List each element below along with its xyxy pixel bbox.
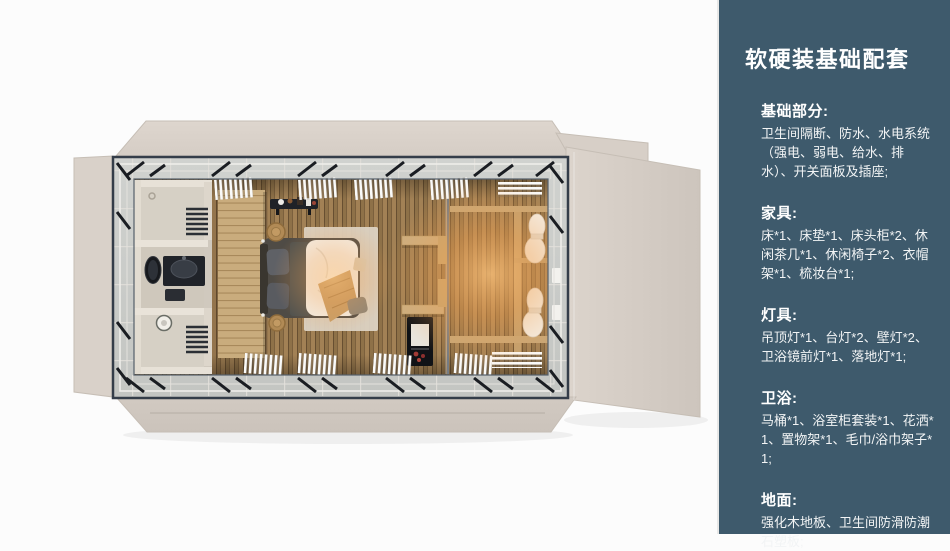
bathroom-partition bbox=[134, 308, 208, 315]
right-wall-flap bbox=[566, 147, 700, 417]
bathroom-wall bbox=[134, 367, 212, 374]
section-heading: 灯具: bbox=[761, 304, 936, 325]
bed-leg bbox=[261, 239, 265, 243]
section-heading: 基础部分: bbox=[761, 100, 936, 121]
bathroom bbox=[134, 180, 212, 374]
wall-switch-panel bbox=[552, 268, 561, 283]
bottle bbox=[288, 199, 293, 204]
bathroom-wall bbox=[134, 180, 141, 374]
vanity-stool bbox=[165, 289, 185, 301]
info-panel: 软硬装基础配套 基础部分: 卫生间隔断、防水、水电系统（强电、弱电、给水、排水）… bbox=[717, 0, 950, 534]
left-wall-flap bbox=[74, 156, 113, 397]
bathroom-wall bbox=[204, 182, 212, 240]
section-lighting: 灯具: 吊顶灯*1、台灯*2、壁灯*2、卫浴镜前灯*1、落地灯*1; bbox=[761, 304, 936, 366]
section-bathroom: 卫浴: 马桶*1、浴室柜套装*1、花洒*1、置物架*1、毛巾/浴巾架子*1; bbox=[761, 387, 936, 468]
wall-switch-panel bbox=[552, 305, 561, 320]
bathroom-partition bbox=[134, 240, 208, 247]
section-basics: 基础部分: 卫生间隔断、防水、水电系统（强电、弱电、给水、排水）、开关面板及插座… bbox=[761, 100, 936, 181]
top-wall-flap bbox=[116, 121, 576, 156]
deco-item bbox=[312, 201, 316, 205]
wardrobe-partition bbox=[218, 190, 267, 358]
vanity-mirror-glass bbox=[148, 260, 158, 280]
section-body: 吊顶灯*1、台灯*2、壁灯*2、卫浴镜前灯*1、落地灯*1; bbox=[761, 328, 935, 366]
bed-leg bbox=[261, 313, 265, 317]
floorplan-render bbox=[0, 0, 716, 534]
section-body: 卫生间隔断、防水、水电系统（强电、弱电、给水、排水）、开关面板及插座; bbox=[761, 124, 935, 181]
wash-basin bbox=[171, 260, 197, 278]
section-body: 强化木地板、卫生间防滑防潮石塑板; bbox=[761, 513, 935, 551]
section-flooring: 地面: 强化木地板、卫生间防滑防潮石塑板; bbox=[761, 489, 936, 551]
section-body: 马桶*1、浴室柜套装*1、花洒*1、置物架*1、毛巾/浴巾架子*1; bbox=[761, 411, 935, 468]
bathroom-wall bbox=[134, 180, 212, 187]
section-heading: 家具: bbox=[761, 202, 936, 223]
floorplan-svg bbox=[0, 0, 716, 534]
section-heading: 地面: bbox=[761, 489, 936, 510]
faucet bbox=[182, 256, 186, 260]
section-heading: 卫浴: bbox=[761, 387, 936, 408]
panel-title: 软硬装基础配套 bbox=[745, 42, 936, 74]
bottle bbox=[278, 199, 284, 205]
toilet-seat bbox=[161, 320, 167, 326]
section-body: 床*1、床垫*1、床头柜*2、休闲茶几*1、休闲椅子*2、衣帽架*1、梳妆台*1… bbox=[761, 226, 935, 283]
bottom-wall-flap bbox=[116, 397, 576, 432]
glazing-ties bbox=[114, 158, 134, 397]
section-furniture: 家具: 床*1、床垫*1、床头柜*2、休闲茶几*1、休闲椅子*2、衣帽架*1、梳… bbox=[761, 202, 936, 283]
